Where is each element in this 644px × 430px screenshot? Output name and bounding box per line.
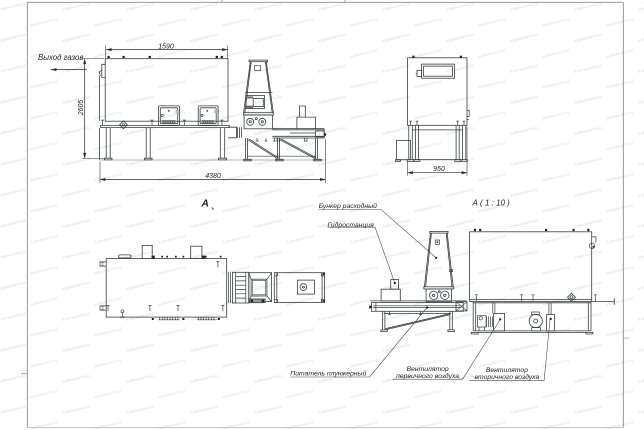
- svg-text:Гидростанция: Гидростанция: [328, 221, 375, 229]
- svg-text:Вентилятор: Вентилятор: [407, 366, 449, 373]
- svg-text:Выход газов: Выход газов: [38, 53, 83, 62]
- svg-text:вторичного воздуха: вторичного воздуха: [475, 373, 540, 381]
- svg-text:1590: 1590: [158, 44, 174, 51]
- svg-text:2605: 2605: [78, 100, 85, 117]
- svg-text:Бункер расходный: Бункер расходный: [319, 202, 377, 210]
- svg-text:4380: 4380: [205, 173, 221, 180]
- svg-text:950: 950: [433, 166, 445, 173]
- svg-text:Питатель плунжерный: Питатель плунжерный: [290, 369, 366, 377]
- svg-text:первичного воздуха: первичного воздуха: [396, 372, 459, 380]
- svg-text:Вентилятор: Вентилятор: [486, 367, 528, 374]
- svg-text:А: А: [201, 199, 209, 210]
- svg-text:А ( 1 : 10 ): А ( 1 : 10 ): [472, 199, 511, 208]
